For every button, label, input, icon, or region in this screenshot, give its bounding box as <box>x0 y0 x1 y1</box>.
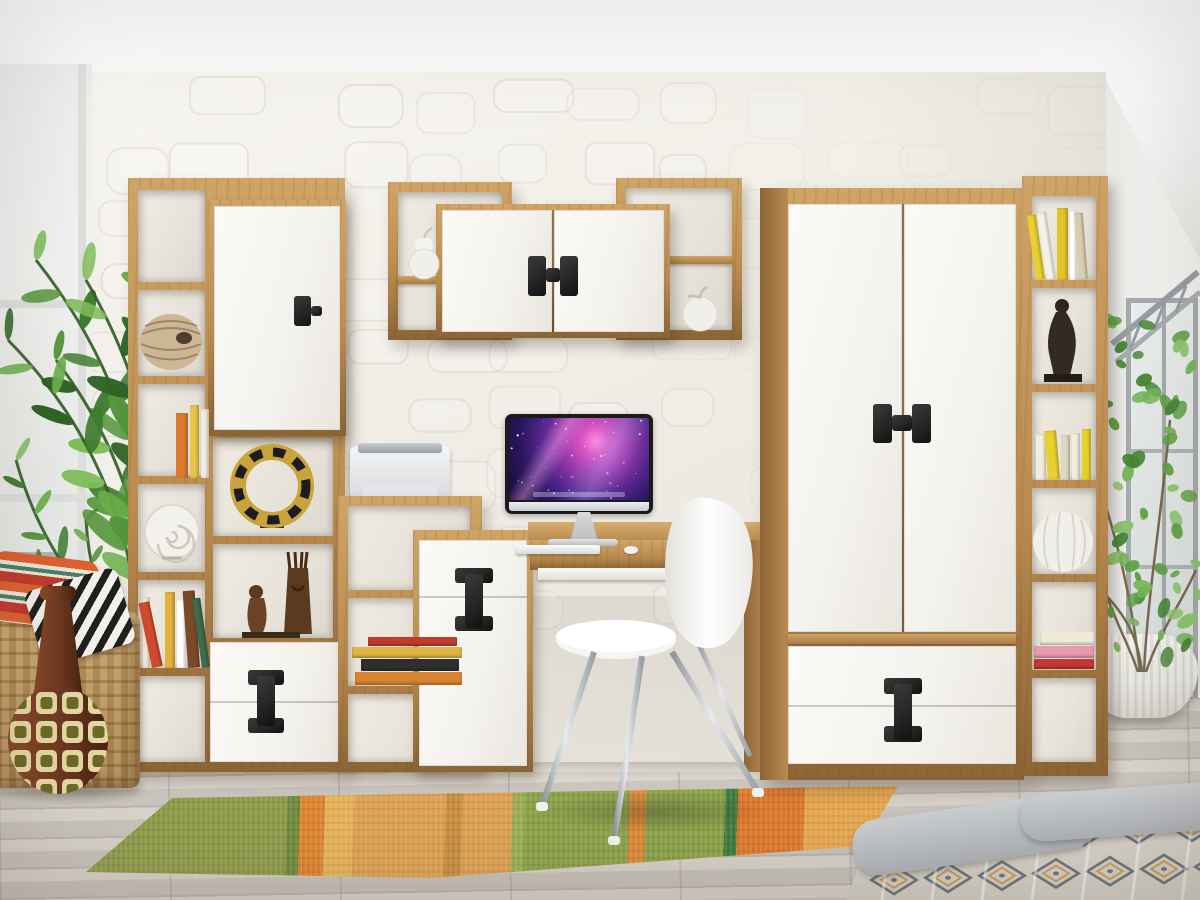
books-right-top <box>1034 204 1092 280</box>
book-spine <box>190 405 199 478</box>
floor-vase <box>0 560 140 810</box>
book-flat <box>368 637 458 646</box>
books-left-lean <box>174 398 212 478</box>
book-spine <box>176 413 188 478</box>
ribbed-ball <box>1033 512 1093 572</box>
book-spine <box>165 592 176 668</box>
wood-figurines <box>242 552 312 638</box>
chair[interactable] <box>520 488 820 858</box>
books-right-stack <box>1034 630 1094 670</box>
book-flat <box>352 647 462 658</box>
book-flat <box>361 659 459 671</box>
book-spine <box>1044 431 1060 480</box>
black-figurine <box>1044 299 1082 382</box>
book-flat <box>1034 646 1094 658</box>
books-right-lean <box>1034 422 1092 480</box>
book-spine <box>1072 433 1080 480</box>
book-spine <box>1057 208 1067 280</box>
book-flat <box>1034 659 1094 669</box>
pear-ornament <box>409 228 439 279</box>
books-left-row <box>141 584 211 668</box>
book-spine <box>201 409 210 478</box>
apple-ornament <box>683 287 717 331</box>
books-mid-stack <box>352 636 462 686</box>
room-photo <box>0 0 1200 900</box>
book-flat <box>355 672 462 685</box>
book-flat <box>1040 632 1094 645</box>
book-spine <box>1082 429 1091 480</box>
clay-sphere <box>140 314 202 370</box>
book-spine <box>1061 435 1070 480</box>
